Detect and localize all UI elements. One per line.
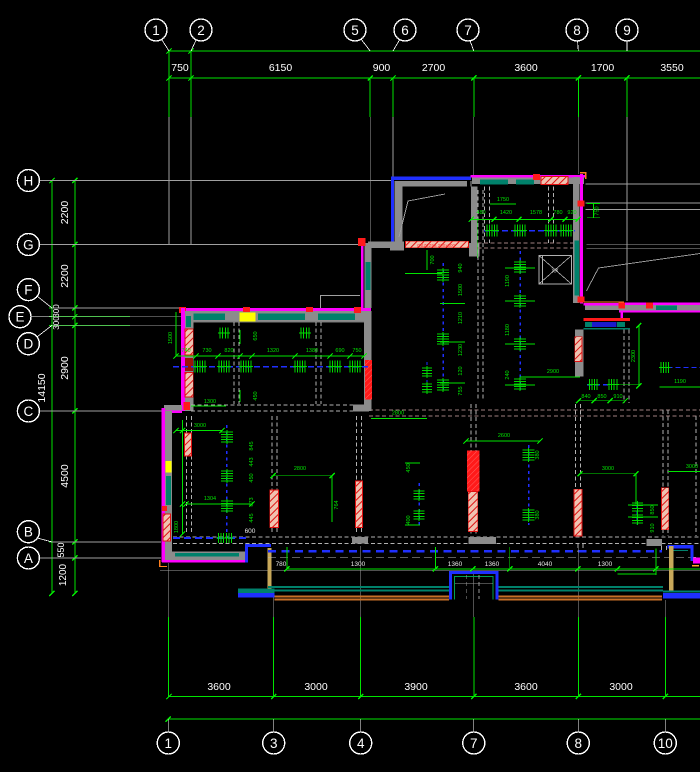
svg-text:1230: 1230 — [458, 344, 464, 356]
svg-text:730: 730 — [202, 348, 211, 354]
svg-text:910: 910 — [613, 394, 622, 400]
svg-text:845: 845 — [249, 441, 255, 450]
svg-text:2600: 2600 — [498, 433, 510, 439]
svg-text:10: 10 — [658, 736, 673, 751]
svg-text:755: 755 — [458, 386, 464, 395]
svg-text:650: 650 — [253, 331, 259, 340]
svg-text:3000: 3000 — [686, 464, 698, 470]
svg-text:750: 750 — [171, 62, 189, 74]
svg-text:820: 820 — [224, 348, 233, 354]
svg-text:14150: 14150 — [36, 373, 48, 402]
svg-text:1300: 1300 — [598, 561, 613, 568]
svg-text:1500: 1500 — [458, 284, 464, 296]
svg-text:450: 450 — [249, 473, 255, 482]
svg-text:9: 9 — [623, 23, 631, 38]
svg-text:3600: 3600 — [514, 62, 538, 74]
svg-text:920: 920 — [567, 210, 576, 216]
svg-text:300: 300 — [52, 316, 61, 330]
svg-text:2300: 2300 — [631, 350, 637, 362]
svg-text:120: 120 — [458, 366, 464, 375]
svg-text:H: H — [24, 173, 34, 188]
svg-text:B: B — [24, 525, 33, 540]
svg-text:1: 1 — [152, 23, 160, 38]
svg-text:1180: 1180 — [505, 324, 511, 336]
svg-text:1300: 1300 — [204, 399, 216, 405]
svg-text:4: 4 — [357, 736, 365, 751]
svg-text:740: 740 — [181, 348, 190, 354]
svg-text:E: E — [15, 310, 24, 325]
svg-text:1750: 1750 — [497, 197, 509, 203]
svg-text:7: 7 — [470, 736, 478, 751]
svg-text:D: D — [24, 337, 34, 352]
svg-text:300: 300 — [52, 304, 61, 318]
svg-text:1200: 1200 — [58, 563, 69, 586]
svg-text:750: 750 — [352, 348, 361, 354]
svg-text:750: 750 — [595, 206, 601, 215]
svg-text:1380: 1380 — [306, 348, 318, 354]
svg-text:1500: 1500 — [168, 332, 174, 344]
svg-text:940: 940 — [458, 263, 464, 272]
svg-text:4040: 4040 — [538, 561, 553, 568]
svg-text:450: 450 — [406, 463, 412, 472]
svg-text:2200: 2200 — [59, 264, 71, 288]
svg-text:700: 700 — [430, 255, 436, 264]
svg-text:3900: 3900 — [404, 681, 428, 693]
svg-text:2700: 2700 — [422, 62, 446, 74]
svg-text:1360: 1360 — [485, 561, 500, 568]
svg-text:445: 445 — [249, 513, 255, 522]
svg-text:3600: 3600 — [514, 681, 538, 693]
svg-text:8: 8 — [575, 736, 583, 751]
svg-text:2800: 2800 — [294, 466, 306, 472]
svg-text:240: 240 — [505, 370, 511, 379]
svg-text:443: 443 — [249, 457, 255, 466]
svg-text:450: 450 — [253, 391, 259, 400]
svg-text:600: 600 — [245, 528, 256, 535]
svg-text:4500: 4500 — [59, 464, 71, 488]
svg-text:5: 5 — [351, 23, 359, 38]
svg-text:6: 6 — [401, 23, 409, 38]
svg-text:3000: 3000 — [194, 423, 206, 429]
svg-text:400: 400 — [406, 515, 412, 524]
svg-text:840: 840 — [581, 394, 590, 400]
svg-text:F: F — [24, 282, 32, 297]
svg-text:690: 690 — [335, 348, 344, 354]
svg-text:2900: 2900 — [547, 369, 559, 375]
svg-text:C: C — [24, 404, 34, 419]
svg-text:780: 780 — [553, 210, 562, 216]
svg-text:380: 380 — [535, 450, 541, 459]
svg-text:3600: 3600 — [207, 681, 231, 693]
svg-text:910: 910 — [650, 523, 656, 532]
svg-text:1: 1 — [165, 736, 173, 751]
svg-text:764: 764 — [334, 500, 340, 509]
svg-text:1190: 1190 — [674, 379, 686, 385]
svg-text:3000: 3000 — [602, 466, 614, 472]
svg-text:850: 850 — [597, 394, 606, 400]
svg-text:780: 780 — [276, 561, 287, 568]
svg-text:3000: 3000 — [609, 681, 633, 693]
svg-text:480: 480 — [476, 210, 485, 216]
svg-text:1320: 1320 — [267, 348, 279, 354]
svg-text:G: G — [23, 237, 34, 252]
svg-text:380: 380 — [535, 510, 541, 519]
svg-text:7: 7 — [464, 23, 472, 38]
svg-text:1304: 1304 — [204, 496, 216, 502]
svg-text:2200: 2200 — [59, 201, 71, 225]
svg-text:1800: 1800 — [174, 521, 180, 533]
svg-text:550: 550 — [56, 542, 66, 557]
svg-text:850: 850 — [650, 505, 656, 514]
svg-text:900: 900 — [373, 62, 391, 74]
svg-text:1300: 1300 — [351, 561, 366, 568]
svg-text:1190: 1190 — [505, 275, 511, 287]
svg-text:8: 8 — [573, 23, 581, 38]
svg-text:3: 3 — [270, 736, 278, 751]
svg-text:2: 2 — [197, 23, 205, 38]
svg-text:2900: 2900 — [59, 356, 71, 380]
svg-text:1700: 1700 — [591, 62, 615, 74]
svg-text:A: A — [24, 551, 33, 566]
svg-text:XX: XX — [551, 269, 559, 275]
svg-text:3000: 3000 — [304, 681, 328, 693]
svg-text:1210: 1210 — [458, 312, 464, 324]
svg-text:GBZ2Z6a 200x600: GBZ2Z6a 200x600 — [417, 243, 456, 248]
svg-text:6150: 6150 — [269, 62, 293, 74]
svg-text:2800: 2800 — [392, 411, 404, 417]
svg-text:1420: 1420 — [500, 210, 512, 216]
svg-text:3550: 3550 — [660, 62, 684, 74]
svg-text:1578: 1578 — [530, 210, 542, 216]
svg-text:1360: 1360 — [448, 561, 463, 568]
